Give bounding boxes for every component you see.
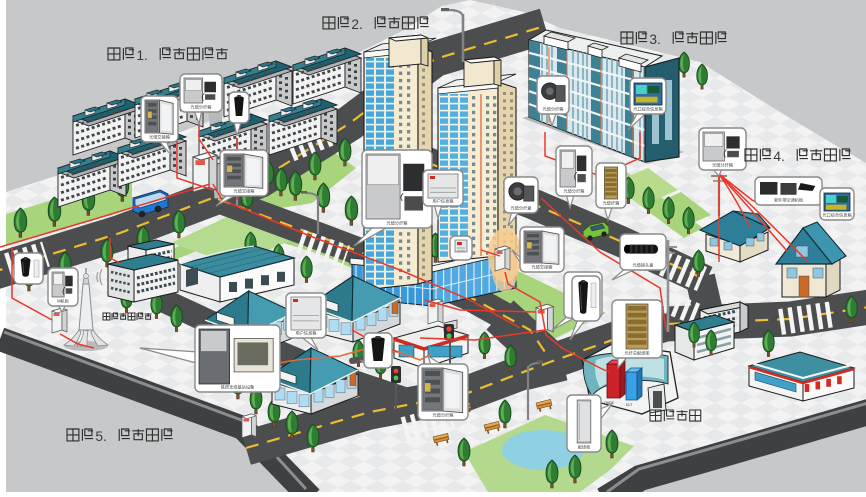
svg-text:光缆分纤箱: 光缆分纤箱	[433, 412, 454, 419]
svg-text:光缆分纤箱: 光缆分纤箱	[543, 106, 564, 113]
svg-text:室外带空调机柜: 室外带空调机柜	[774, 197, 803, 204]
svg-text:光口综合信息箱: 光口综合信息箱	[633, 106, 662, 113]
svg-text:用户信息箱: 用户信息箱	[433, 198, 454, 205]
svg-text:光缆交接箱: 光缆交接箱	[234, 188, 255, 195]
svg-text:1.: 1.	[136, 48, 147, 63]
svg-text:4.: 4.	[773, 149, 784, 164]
svg-text:光缆分纤箱: 光缆分纤箱	[191, 104, 212, 111]
svg-text:光缆交接箱: 光缆交接箱	[532, 264, 553, 271]
svg-text:光缆分纤箱: 光缆分纤箱	[387, 220, 408, 227]
svg-text:光缆分纤箱: 光缆分纤箱	[712, 162, 733, 169]
svg-text:光缆接头盒: 光缆接头盒	[633, 262, 655, 269]
svg-text:铁塔无线基站设备: 铁塔无线基站设备	[221, 384, 255, 391]
svg-text:光纤总配线架: 光纤总配线架	[624, 350, 649, 357]
svg-text:光口综合信息箱: 光口综合信息箱	[822, 212, 851, 219]
svg-text:配线柜: 配线柜	[578, 444, 591, 451]
svg-text:M机柜: M机柜	[57, 298, 69, 305]
svg-text:DLT: DLT	[626, 403, 632, 407]
svg-text:光缆分纤箱: 光缆分纤箱	[564, 188, 585, 195]
svg-text:2.: 2.	[351, 17, 362, 32]
svg-text:3.: 3.	[649, 32, 660, 47]
svg-text:光缆纤箱: 光缆纤箱	[603, 200, 620, 207]
svg-text:光缆分纤盒: 光缆分纤盒	[511, 205, 533, 212]
svg-text:光缆交接箱: 光缆交接箱	[149, 134, 170, 141]
svg-text:OMDF: OMDF	[604, 401, 614, 405]
svg-text:用户信息箱: 用户信息箱	[296, 330, 317, 337]
svg-text:5.: 5.	[95, 429, 106, 444]
